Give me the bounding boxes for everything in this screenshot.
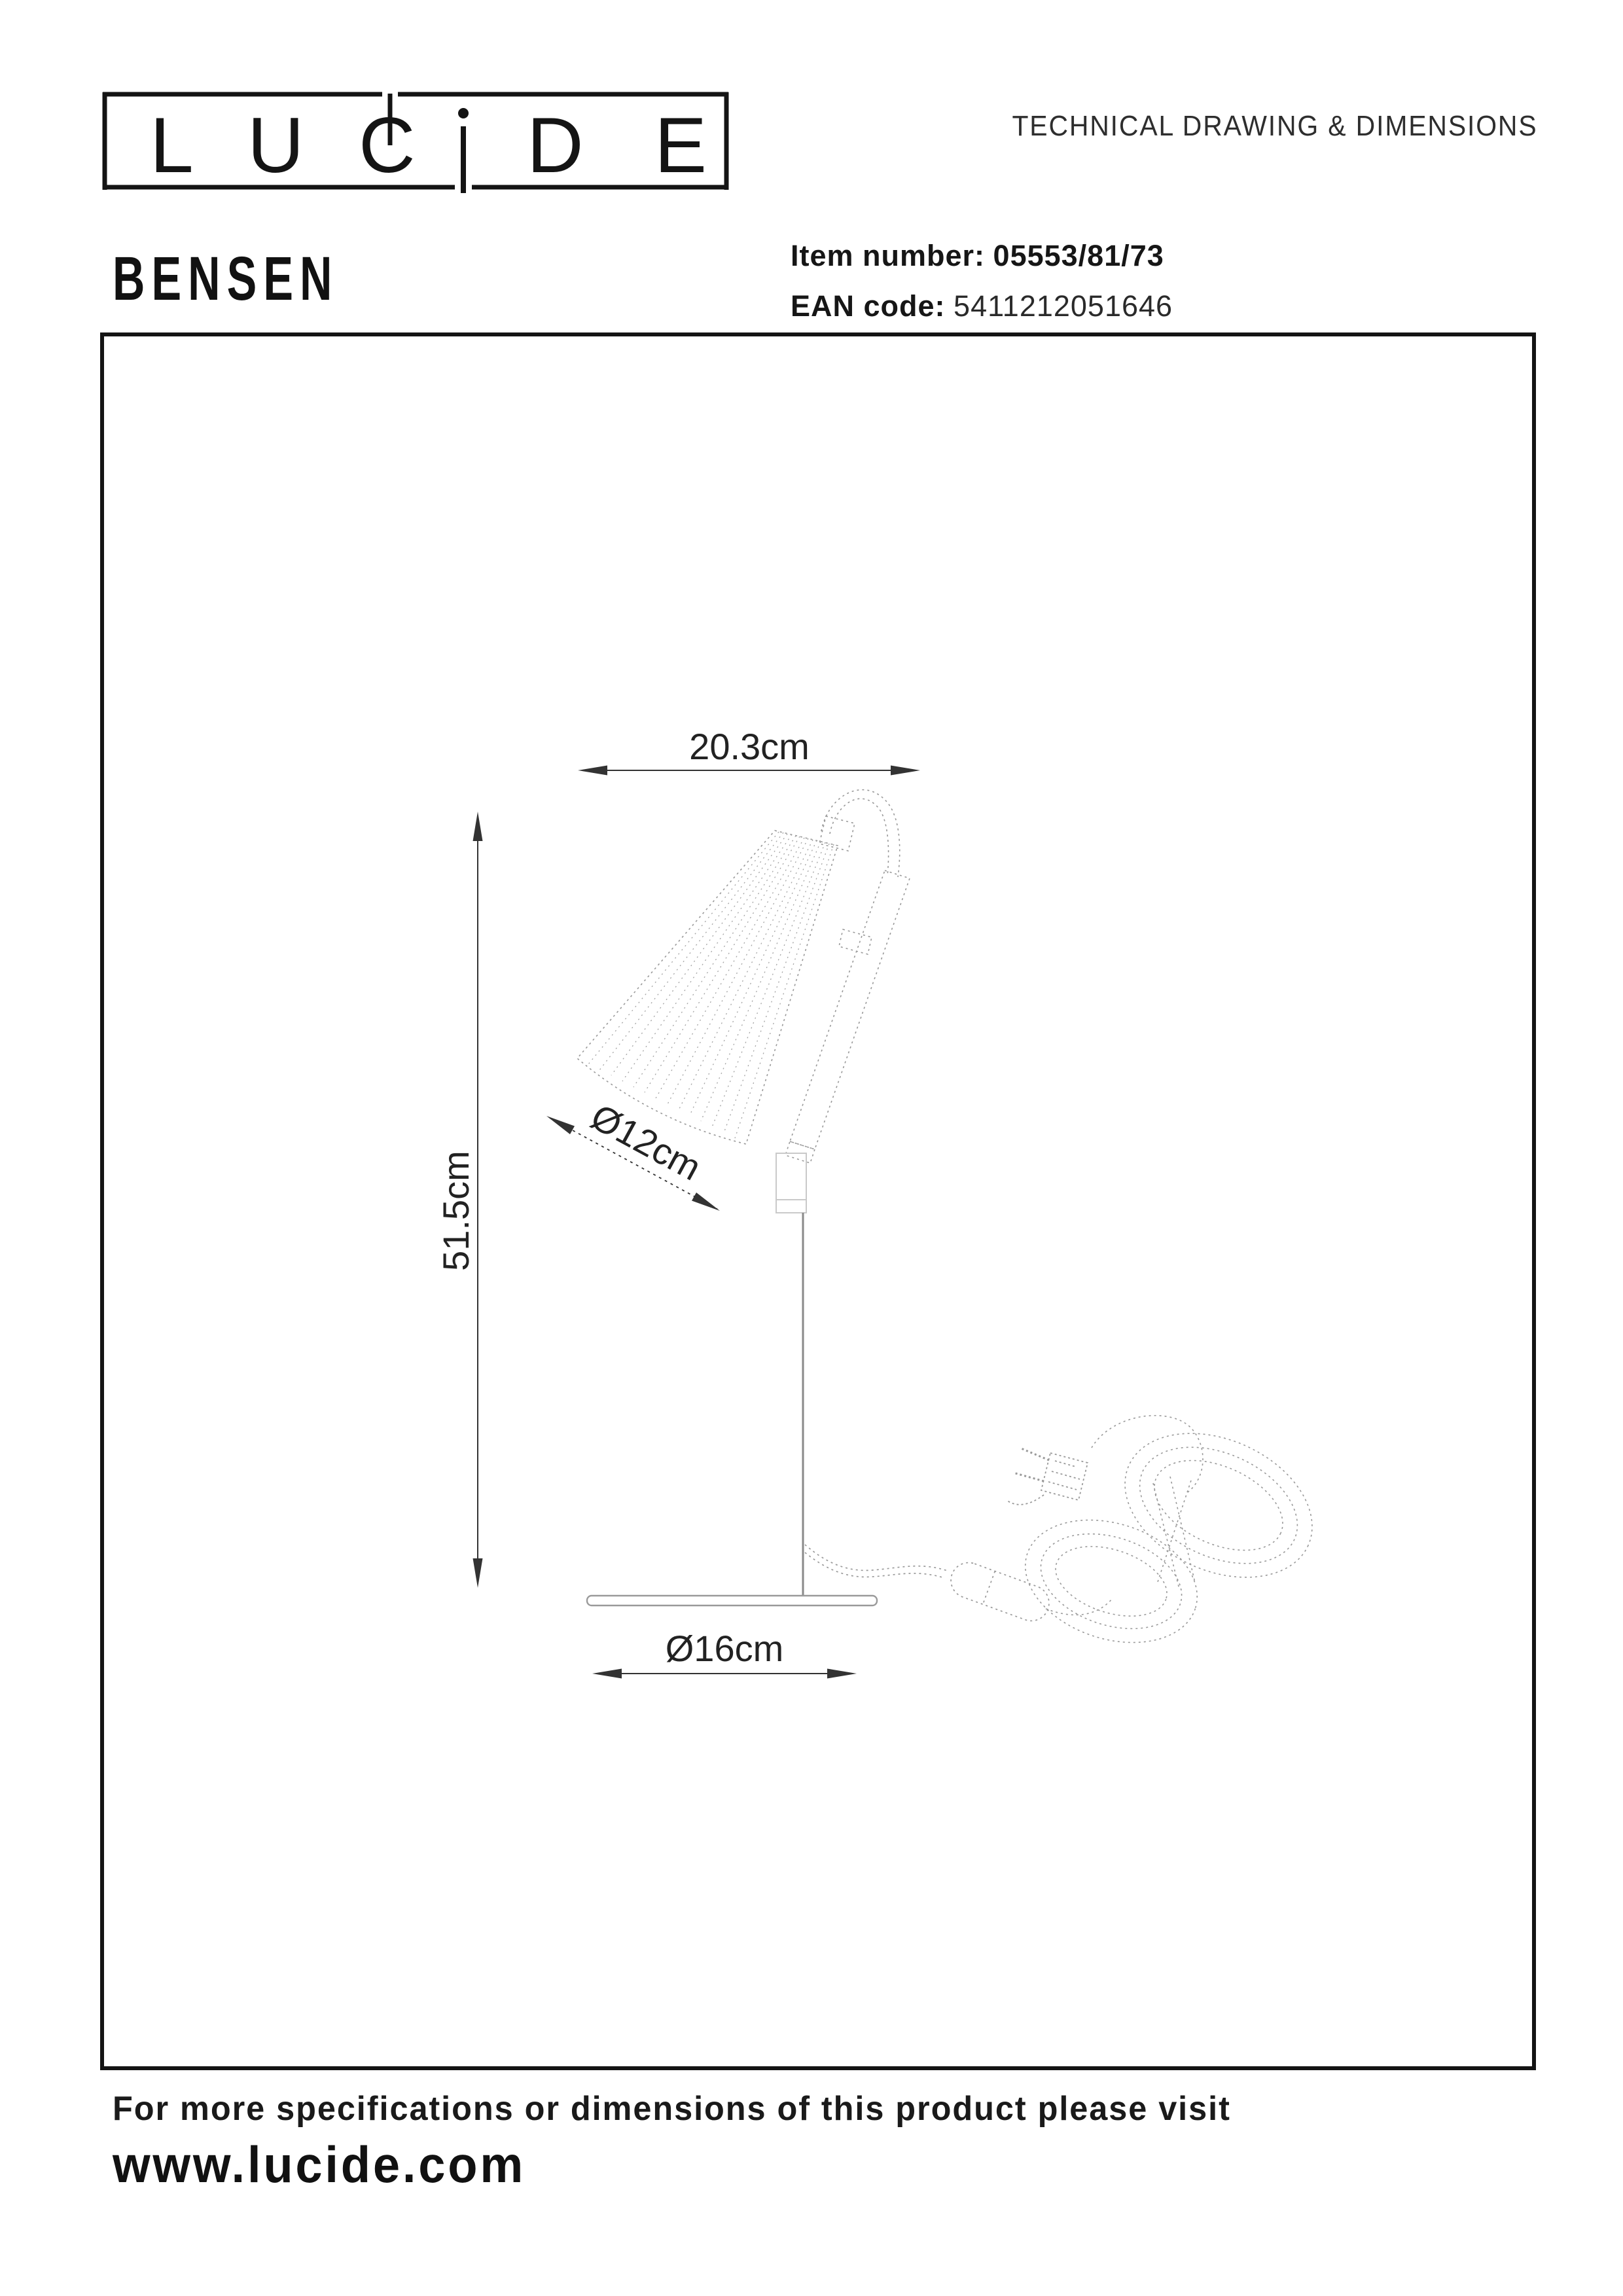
item-number-row: Item number: 05553/81/73: [791, 230, 1173, 281]
logo-letter: L: [150, 101, 194, 189]
logo-letter: D: [527, 101, 584, 189]
website-link[interactable]: www.lucide.com: [113, 2135, 526, 2195]
footer-note: For more specifications or dimensions of…: [113, 2089, 1231, 2128]
logo-letter: C: [359, 101, 416, 189]
ean-label: EAN code:: [791, 289, 946, 323]
ean-value: 5411212051646: [954, 289, 1173, 323]
website-link-text[interactable]: www.lucide.com: [113, 2136, 526, 2193]
spec-sheet-page: L U C D E TECHNICAL DRAWING & DIMENSIONS…: [0, 0, 1623, 2296]
logo-letter-i: [458, 108, 469, 193]
product-name: BENSEN: [113, 243, 339, 315]
ean-row: EAN code: 5411212051646: [791, 281, 1173, 331]
logo-letter: E: [654, 101, 707, 189]
technical-drawing-frame: [100, 332, 1536, 2070]
logo-letter: U: [247, 101, 304, 189]
item-number-value: 05553/81/73: [993, 239, 1164, 272]
logo-frame: [103, 92, 728, 190]
logo-letters: L U C D E: [150, 101, 707, 189]
item-number-label: Item number:: [791, 239, 985, 272]
document-title: TECHNICAL DRAWING & DIMENSIONS: [1012, 110, 1537, 143]
product-identifiers: Item number: 05553/81/73 EAN code: 54112…: [791, 230, 1173, 331]
